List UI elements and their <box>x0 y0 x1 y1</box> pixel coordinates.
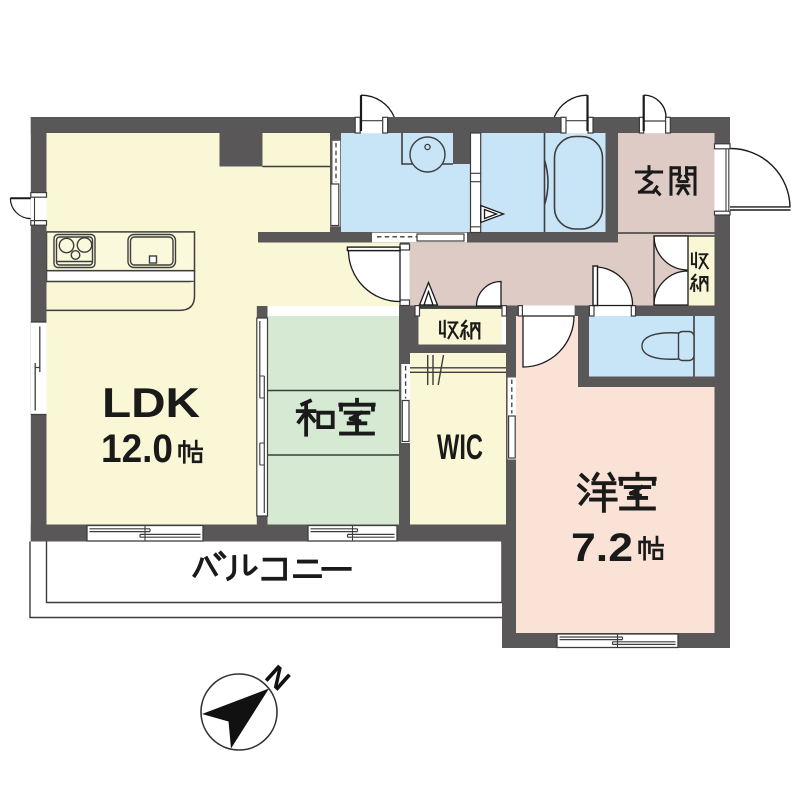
svg-text:7.2: 7.2 <box>571 526 633 570</box>
svg-text:WIC: WIC <box>437 428 483 467</box>
svg-text:LDK: LDK <box>102 379 200 426</box>
svg-text:12.0: 12.0 <box>101 427 173 471</box>
